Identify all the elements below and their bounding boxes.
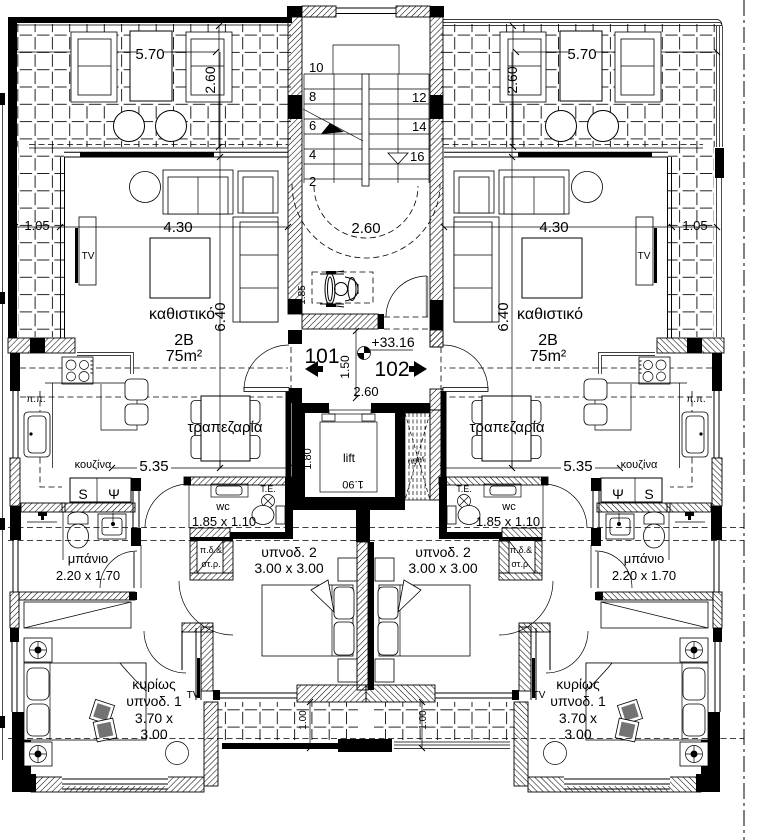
svg-text:μπάνιο: μπάνιο xyxy=(624,551,664,566)
svg-text:1.05: 1.05 xyxy=(682,218,707,233)
svg-text:υπνοδ. 1: υπνοδ. 1 xyxy=(126,693,182,709)
svg-text:14: 14 xyxy=(412,119,426,134)
svg-text:2.60: 2.60 xyxy=(504,66,520,93)
svg-text:στ.ρ.: στ.ρ. xyxy=(201,559,220,569)
svg-text:1.85 x 1.10: 1.85 x 1.10 xyxy=(476,514,540,529)
svg-text:2B: 2B xyxy=(174,332,194,349)
svg-text:4.30: 4.30 xyxy=(163,219,192,236)
svg-text:υπνοδ. 2: υπνοδ. 2 xyxy=(261,544,317,560)
svg-text:2.20 x 1.70: 2.20 x 1.70 xyxy=(612,568,676,583)
svg-text:2B: 2B xyxy=(538,332,558,349)
svg-text:10: 10 xyxy=(309,60,323,75)
svg-text:κουζίνα: κουζίνα xyxy=(75,459,112,471)
svg-text:1.00: 1.00 xyxy=(418,710,429,730)
svg-text:π.δ.&: π.δ.& xyxy=(510,545,532,555)
svg-text:υπνοδ. 2: υπνοδ. 2 xyxy=(415,544,471,560)
svg-text:3.00 x 3.00: 3.00 x 3.00 xyxy=(408,560,477,576)
svg-text:3.00: 3.00 xyxy=(564,726,591,742)
svg-text:5.35: 5.35 xyxy=(139,458,168,475)
svg-text:1.00: 1.00 xyxy=(298,710,309,730)
svg-text:π.π.: π.π. xyxy=(26,394,45,405)
svg-text:4.30: 4.30 xyxy=(539,219,568,236)
svg-text:+33.16: +33.16 xyxy=(371,334,414,350)
svg-text:τραπεζαρία: τραπεζαρία xyxy=(470,419,545,436)
svg-text:1.85: 1.85 xyxy=(297,285,308,305)
svg-text:TV: TV xyxy=(82,251,95,262)
svg-text:3.70 x: 3.70 x xyxy=(559,710,597,726)
svg-text:1.85 x 1.10: 1.85 x 1.10 xyxy=(192,514,256,529)
svg-text:4: 4 xyxy=(309,147,316,162)
svg-text:lift: lift xyxy=(343,451,356,465)
svg-text:2.20 x 1.70: 2.20 x 1.70 xyxy=(56,568,120,583)
svg-text:Ψ: Ψ xyxy=(612,486,624,502)
svg-text:T.E.: T.E. xyxy=(456,484,472,494)
svg-text:υπνοδ. 1: υπνοδ. 1 xyxy=(550,693,606,709)
svg-text:102: 102 xyxy=(374,358,409,381)
svg-text:5.35: 5.35 xyxy=(563,458,592,475)
svg-text:S: S xyxy=(644,486,653,502)
svg-text:Ψ: Ψ xyxy=(108,486,120,502)
svg-text:T.E.: T.E. xyxy=(260,484,276,494)
svg-text:16: 16 xyxy=(410,149,424,164)
svg-text:2.60: 2.60 xyxy=(351,220,380,237)
svg-text:TV: TV xyxy=(533,690,546,701)
svg-text:wc: wc xyxy=(215,501,230,513)
svg-text:1.80: 1.80 xyxy=(302,448,314,469)
svg-text:75m²: 75m² xyxy=(530,348,567,365)
svg-text:2.60: 2.60 xyxy=(353,384,378,399)
svg-text:12: 12 xyxy=(412,90,426,105)
svg-text:μπάνιο: μπάνιο xyxy=(68,551,108,566)
svg-text:5.70: 5.70 xyxy=(567,46,596,63)
svg-text:καθιστικό: καθιστικό xyxy=(149,306,215,323)
svg-text:5.70: 5.70 xyxy=(135,46,164,63)
svg-text:TV: TV xyxy=(638,251,651,262)
svg-text:6: 6 xyxy=(309,118,316,133)
svg-text:στ.ρ.: στ.ρ. xyxy=(511,559,530,569)
svg-text:κυρίως: κυρίως xyxy=(556,676,600,692)
svg-text:καθιστικό: καθιστικό xyxy=(517,306,583,323)
svg-text:wc: wc xyxy=(501,501,516,513)
svg-text:101: 101 xyxy=(304,345,339,368)
svg-text:6.40: 6.40 xyxy=(495,302,512,331)
svg-text:1.50: 1.50 xyxy=(338,355,352,379)
svg-text:3.00: 3.00 xyxy=(140,726,167,742)
svg-text:75m²: 75m² xyxy=(166,348,203,365)
svg-text:TV: TV xyxy=(187,690,200,701)
svg-text:S: S xyxy=(78,486,87,502)
svg-text:π.δ.&: π.δ.& xyxy=(200,545,222,555)
svg-text:8: 8 xyxy=(309,89,316,104)
svg-text:κυρίως: κυρίως xyxy=(132,676,176,692)
svg-text:κουζίνα: κουζίνα xyxy=(621,459,658,471)
svg-text:τραπεζαρία: τραπεζαρία xyxy=(188,419,263,436)
svg-text:3.00 x 3.00: 3.00 x 3.00 xyxy=(254,560,323,576)
svg-text:1.90: 1.90 xyxy=(342,478,363,490)
svg-text:3.70 x: 3.70 x xyxy=(135,710,173,726)
svg-text:π.π.: π.π. xyxy=(686,394,705,405)
svg-text:2: 2 xyxy=(309,174,316,189)
svg-text:2.60: 2.60 xyxy=(202,66,218,93)
svg-text:1.05: 1.05 xyxy=(24,218,49,233)
